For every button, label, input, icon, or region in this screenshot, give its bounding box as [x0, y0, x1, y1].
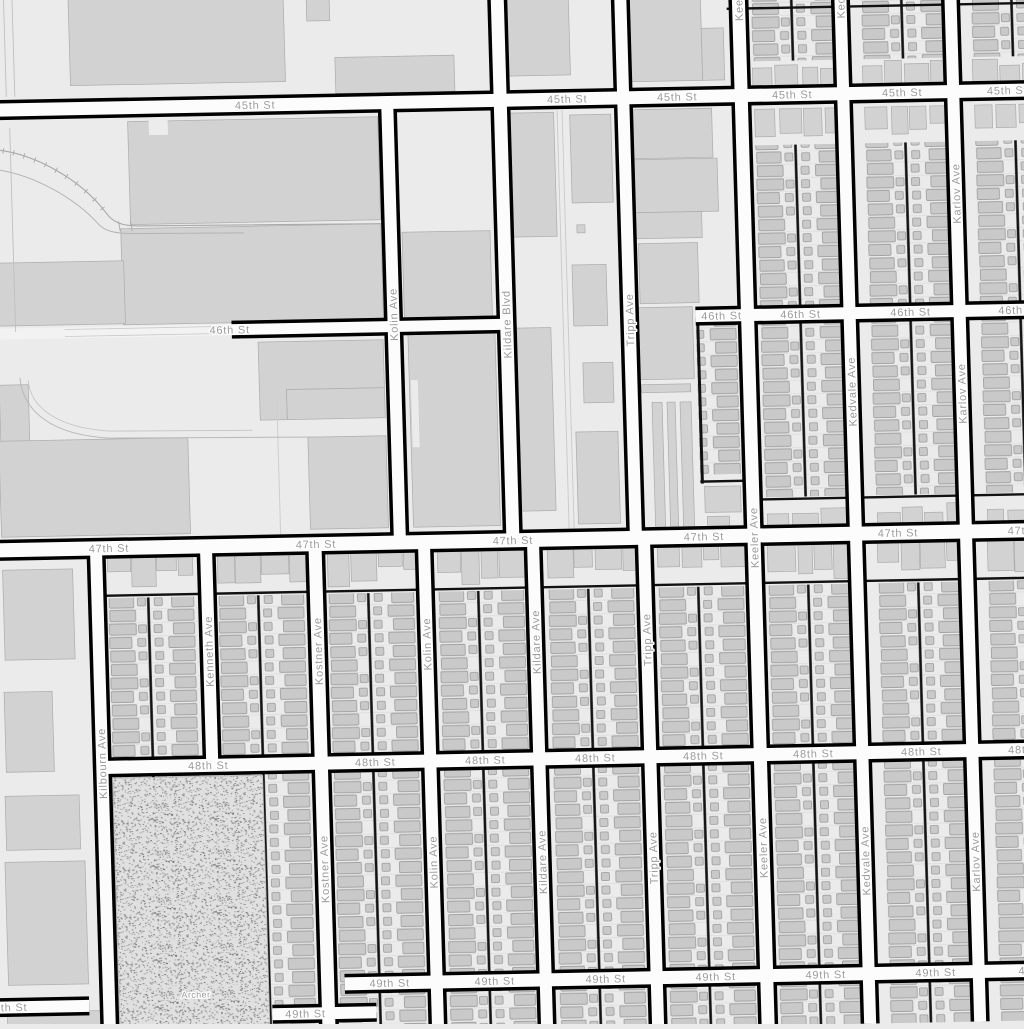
- svg-text:Karlov Ave: Karlov Ave: [950, 163, 964, 224]
- svg-text:45th St: 45th St: [882, 87, 923, 100]
- svg-text:47th St: 47th St: [1008, 525, 1024, 538]
- svg-text:47th St: 47th St: [684, 531, 725, 544]
- svg-text:Kilbourn Ave: Kilbourn Ave: [96, 728, 110, 799]
- svg-text:Keeler Ave: Keeler Ave: [732, 0, 746, 21]
- svg-text:48th St: 48th St: [355, 757, 396, 770]
- svg-text:Kildare Blvd: Kildare Blvd: [501, 290, 515, 359]
- svg-text:48th St: 48th St: [575, 752, 616, 765]
- svg-text:46th St: 46th St: [998, 304, 1024, 317]
- svg-text:45th St: 45th St: [987, 85, 1024, 98]
- svg-text:46th St: 46th St: [890, 306, 931, 319]
- svg-text:Tripp Ave: Tripp Ave: [647, 831, 661, 884]
- svg-text:46th St: 46th St: [701, 310, 742, 323]
- svg-text:48th St: 48th St: [683, 750, 724, 763]
- svg-text:49th St: 49th St: [805, 969, 846, 982]
- svg-text:Kolin Ave: Kolin Ave: [421, 617, 435, 670]
- svg-text:47th St: 47th St: [493, 535, 534, 548]
- svg-text:49th St: 49th St: [369, 977, 410, 990]
- svg-text:Karlov Ave: Karlov Ave: [970, 831, 984, 892]
- svg-text:Kostner Ave: Kostner Ave: [318, 835, 332, 903]
- svg-text:Kildare Ave: Kildare Ave: [530, 610, 544, 674]
- svg-text:48th St: 48th St: [465, 754, 506, 767]
- svg-text:48th St: 48th St: [1008, 744, 1024, 757]
- svg-text:Archer: Archer: [181, 989, 210, 1000]
- svg-text:45th St: 45th St: [657, 91, 698, 104]
- svg-text:Karlov Ave: Karlov Ave: [956, 363, 970, 424]
- svg-text:46th St: 46th St: [780, 309, 821, 322]
- svg-text:48th St: 48th St: [188, 760, 229, 773]
- svg-text:49th St: 49th St: [585, 973, 626, 986]
- svg-text:47th St: 47th St: [296, 539, 337, 552]
- svg-text:Kedvale Ave: Kedvale Ave: [859, 826, 873, 896]
- svg-text:46th St: 46th St: [209, 324, 250, 337]
- svg-text:Kenneth Ave: Kenneth Ave: [203, 616, 217, 687]
- svg-text:45th St: 45th St: [235, 99, 276, 112]
- svg-text:Kolin Ave: Kolin Ave: [387, 288, 401, 341]
- svg-text:Tripp Ave: Tripp Ave: [624, 293, 638, 346]
- svg-text:Kostner Ave: Kostner Ave: [312, 617, 326, 685]
- svg-text:49th St: 49th St: [695, 971, 736, 984]
- svg-text:Kildare Ave: Kildare Ave: [536, 830, 550, 894]
- svg-text:47th St: 47th St: [878, 527, 919, 540]
- svg-text:49th St: 49th St: [1018, 965, 1024, 978]
- svg-text:49th St: 49th St: [285, 1008, 326, 1021]
- svg-text:45th St: 45th St: [772, 89, 813, 102]
- svg-text:48th St: 48th St: [901, 746, 942, 759]
- svg-text:49th St: 49th St: [915, 967, 956, 980]
- svg-text:49th St: 49th St: [474, 975, 515, 988]
- svg-text:Kedvale Ave: Kedvale Ave: [846, 357, 860, 427]
- svg-text:Tripp Ave: Tripp Ave: [641, 613, 655, 666]
- svg-text:Keeler Ave: Keeler Ave: [748, 507, 762, 568]
- svg-text:49th St: 49th St: [0, 1002, 28, 1015]
- svg-text:Keeler Ave: Keeler Ave: [757, 817, 771, 878]
- svg-text:48th St: 48th St: [793, 748, 834, 761]
- svg-text:45th St: 45th St: [547, 93, 588, 106]
- svg-text:47th St: 47th St: [89, 543, 130, 556]
- svg-text:Kolin Ave: Kolin Ave: [427, 835, 441, 888]
- svg-text:Kedvale Ave: Kedvale Ave: [834, 0, 848, 19]
